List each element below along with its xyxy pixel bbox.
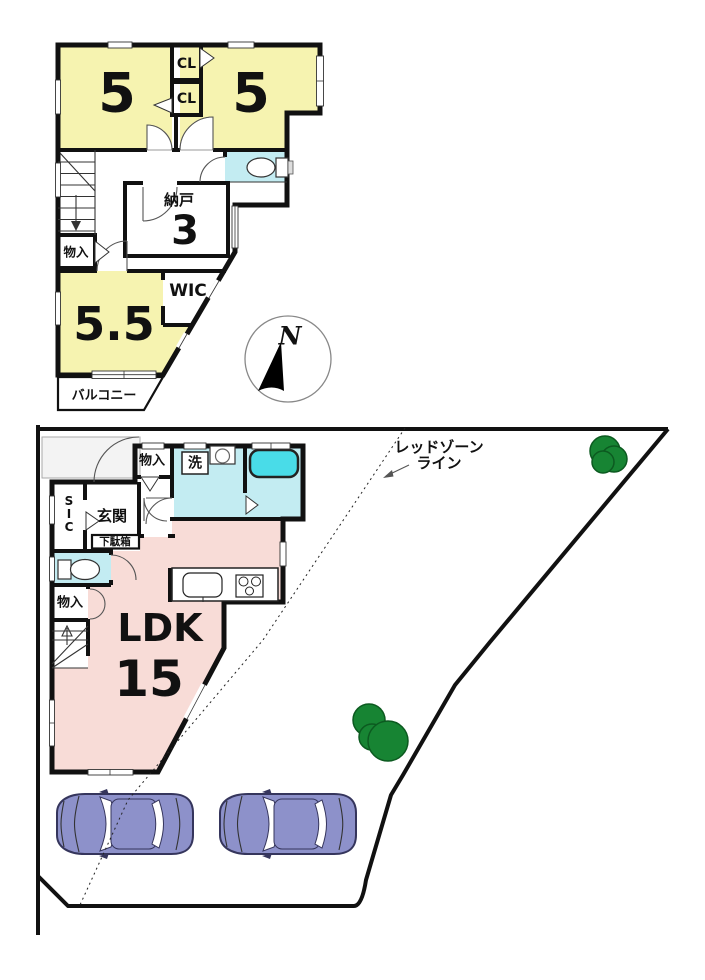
red-zone-arrow-icon (383, 465, 409, 478)
second-floor-plan: 5 5 CL CL 納戸 3 物入 WIC 5.5 バルコニー N (56, 42, 332, 410)
stairs-1f (52, 626, 88, 668)
window (232, 206, 238, 248)
laundry-label: 洗 (188, 455, 202, 472)
tree (590, 436, 627, 473)
closet-small-folddoor-icon (95, 241, 109, 263)
window (88, 770, 133, 776)
closet-small-label: 物入 (63, 245, 89, 260)
car (220, 789, 356, 859)
sic-label-s: S (65, 494, 74, 508)
stairs-down-arrow-icon (71, 221, 81, 231)
washing-machine (210, 446, 235, 464)
window (56, 163, 61, 197)
window (50, 496, 55, 524)
first-floor-site-plan: 物入 洗 S I C 玄関 下駄箱 物入 LDK 15 レッドゾーン ライン (36, 425, 668, 935)
balcony-window (92, 371, 156, 379)
compass-north-label: N (278, 322, 303, 351)
entrance-label: 玄関 (97, 507, 127, 525)
car (57, 789, 193, 859)
bathtub (250, 450, 298, 477)
toilet2-door (200, 157, 225, 182)
closet-lower-label: CL (177, 91, 196, 107)
hall-ldk-door (144, 498, 167, 521)
floorplan-image: 5 5 CL CL 納戸 3 物入 WIC 5.5 バルコニー N (0, 0, 705, 980)
room5-left-label: 5 (98, 62, 136, 125)
window (252, 443, 290, 449)
window (142, 443, 164, 449)
closet-upper-label-1f: 物入 (139, 453, 165, 469)
window (50, 557, 55, 581)
closet-upper-label: CL (177, 56, 196, 72)
balcony-label: バルコニー (72, 389, 137, 404)
ldk-size-label: 15 (114, 650, 184, 708)
tree (353, 704, 408, 761)
window (228, 42, 254, 48)
shoe-cabinet-label: 下駄箱 (99, 535, 131, 548)
closet-upper-folddoor-icon (141, 477, 159, 491)
window (108, 42, 132, 48)
storage-room-label: 納戸 (164, 191, 194, 209)
window (280, 542, 286, 566)
kitchen-counter (172, 568, 278, 602)
window (56, 292, 61, 325)
kitchen-sink (183, 573, 222, 597)
stairs-2f (58, 153, 95, 231)
window (50, 700, 55, 746)
room55-label: 5.5 (73, 297, 155, 351)
toilet-fixture-2f (247, 158, 293, 177)
toilet-fixture-1f (58, 560, 100, 580)
wic-label: WIC (169, 281, 207, 301)
ldk-label: LDK (117, 606, 204, 650)
window (317, 56, 324, 106)
kitchen-stove (236, 575, 263, 597)
sic-label-i: I (67, 507, 71, 521)
porch (42, 437, 140, 478)
compass: N (245, 316, 331, 402)
room5-right-label: 5 (232, 62, 270, 125)
storage-room-size: 3 (171, 208, 199, 254)
closet-lower-label-1f: 物入 (57, 595, 83, 611)
sic-label-c: C (65, 520, 74, 534)
window (184, 443, 206, 449)
red-zone-label-line2: ライン (416, 454, 461, 472)
window (56, 80, 61, 114)
